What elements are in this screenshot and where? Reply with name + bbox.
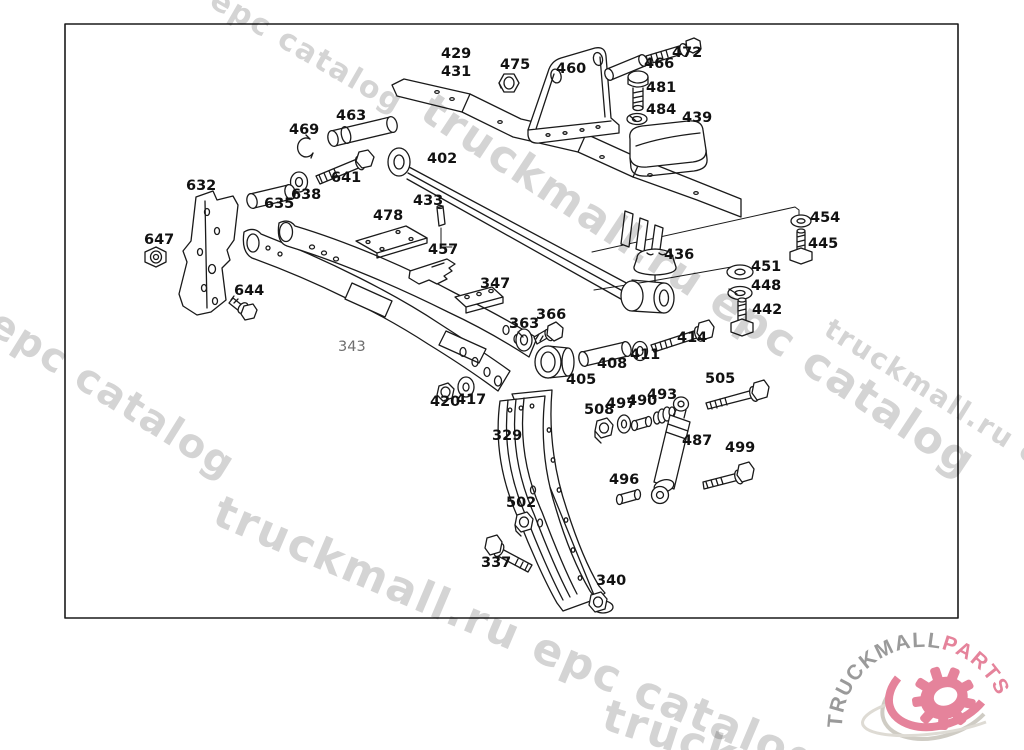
part-label-414: 414 xyxy=(677,330,707,346)
part-label-466: 466 xyxy=(644,56,674,72)
part-label-431: 431 xyxy=(441,64,471,80)
part-label-329: 329 xyxy=(492,428,522,444)
part-label-463: 463 xyxy=(336,108,366,124)
part-label-408: 408 xyxy=(597,356,627,372)
part-label-505: 505 xyxy=(705,371,735,387)
part-label-436: 436 xyxy=(664,247,694,263)
part-label-493: 493 xyxy=(647,387,677,403)
part-label-405: 405 xyxy=(566,372,596,388)
part-label-481: 481 xyxy=(646,80,676,96)
part-label-475: 475 xyxy=(500,57,530,73)
part-label-469: 469 xyxy=(289,122,319,138)
part-label-366: 366 xyxy=(536,307,566,323)
part-label-343: 343 xyxy=(338,339,366,355)
gear-swirl-icon xyxy=(863,658,986,739)
part-label-647: 647 xyxy=(144,232,174,248)
part-label-638: 638 xyxy=(291,187,321,203)
part-label-429: 429 xyxy=(441,46,471,62)
part-label-632: 632 xyxy=(186,178,216,194)
part-label-460: 460 xyxy=(556,61,586,77)
part-label-402: 402 xyxy=(427,151,457,167)
part-label-454: 454 xyxy=(810,210,840,226)
part-label-442: 442 xyxy=(752,302,782,318)
part-label-337: 337 xyxy=(481,555,511,571)
part-label-417: 417 xyxy=(456,392,486,408)
part-label-340: 340 xyxy=(596,573,626,589)
catalog-page: 4294314754604664724814844394634696416386… xyxy=(0,0,1024,750)
part-label-478: 478 xyxy=(373,208,403,224)
part-label-433: 433 xyxy=(413,193,443,209)
part-label-439: 439 xyxy=(682,110,712,126)
part-label-487: 487 xyxy=(682,433,712,449)
part-label-457: 457 xyxy=(428,242,458,258)
part-label-502: 502 xyxy=(506,495,536,511)
part-label-644: 644 xyxy=(234,283,264,299)
part-label-484: 484 xyxy=(646,102,676,118)
part-label-635: 635 xyxy=(264,196,294,212)
part-label-411: 411 xyxy=(630,347,660,363)
part-label-641: 641 xyxy=(331,170,361,186)
truckmall-parts-logo: TRUCKMALLPARTS xyxy=(826,626,1024,750)
part-label-499: 499 xyxy=(725,440,755,456)
part-label-451: 451 xyxy=(751,259,781,275)
part-label-363: 363 xyxy=(509,316,539,332)
part-label-445: 445 xyxy=(808,236,838,252)
part-label-472: 472 xyxy=(672,45,702,61)
part-label-448: 448 xyxy=(751,278,781,294)
part-label-496: 496 xyxy=(609,472,639,488)
part-label-347: 347 xyxy=(480,276,510,292)
